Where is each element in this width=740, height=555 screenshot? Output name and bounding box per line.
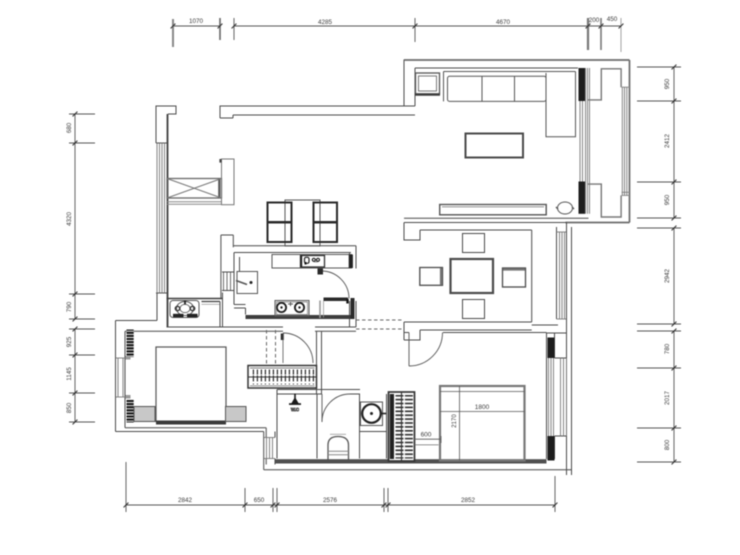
svg-text:2842: 2842 <box>178 497 193 504</box>
svg-text:680: 680 <box>66 122 73 133</box>
svg-text:1070: 1070 <box>189 18 204 25</box>
svg-text:4670: 4670 <box>496 19 511 26</box>
svg-text:790: 790 <box>66 301 73 312</box>
svg-text:650: 650 <box>254 497 265 504</box>
svg-text:2852: 2852 <box>461 497 476 504</box>
svg-text:950: 950 <box>664 194 671 205</box>
svg-text:800: 800 <box>664 439 671 450</box>
svg-text:4320: 4320 <box>66 212 73 227</box>
svg-text:850: 850 <box>66 402 73 413</box>
svg-text:200: 200 <box>589 17 600 24</box>
svg-text:1145: 1145 <box>66 367 73 381</box>
svg-text:2017: 2017 <box>664 391 671 406</box>
svg-text:950: 950 <box>664 78 671 89</box>
svg-text:2576: 2576 <box>323 497 338 504</box>
svg-text:450: 450 <box>607 16 618 23</box>
svg-text:2170: 2170 <box>452 414 458 428</box>
svg-text:1800: 1800 <box>475 404 490 411</box>
svg-text:2942: 2942 <box>664 269 671 284</box>
svg-text:2412: 2412 <box>664 134 671 149</box>
svg-text:925: 925 <box>66 336 73 347</box>
svg-text:780: 780 <box>664 343 671 354</box>
svg-text:600: 600 <box>421 432 432 439</box>
svg-text:W.C: W.C <box>291 407 299 412</box>
svg-text:4285: 4285 <box>318 19 333 26</box>
